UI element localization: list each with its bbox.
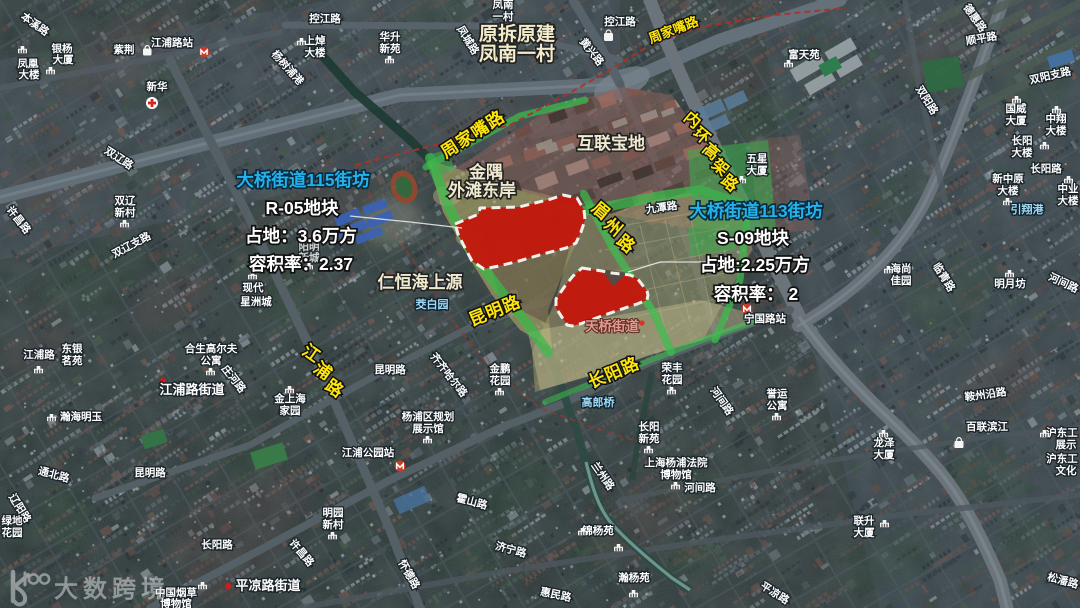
svg-text:大楼: 大楼: [1046, 124, 1068, 137]
svg-text:沪东工: 沪东工: [1046, 426, 1078, 439]
svg-text:江浦路街道: 江浦路街道: [159, 382, 224, 397]
svg-text:河间路: 河间路: [684, 481, 716, 494]
svg-text:上焯: 上焯: [305, 34, 326, 47]
svg-text:占地:2.25万方: 占地:2.25万方: [700, 255, 810, 275]
svg-text:新中原: 新中原: [992, 172, 1024, 185]
svg-text:华升: 华升: [380, 30, 401, 43]
svg-text:大楼: 大楼: [1058, 194, 1080, 207]
svg-text:茭白园: 茭白园: [416, 297, 449, 311]
svg-text:公寓: 公寓: [201, 354, 222, 367]
svg-text:紫荆: 紫荆: [114, 43, 135, 56]
svg-text:天桥街道: 天桥街道: [585, 318, 639, 334]
svg-text:新村: 新村: [115, 206, 136, 219]
svg-text:平凉路街道: 平凉路街道: [235, 578, 300, 593]
svg-text:公寓: 公寓: [767, 399, 788, 412]
svg-text:大楼: 大楼: [998, 184, 1019, 197]
svg-text:容积率：2.37: 容积率：2.37: [249, 254, 353, 274]
svg-text:高郎桥: 高郎桥: [582, 395, 616, 409]
svg-text:现代: 现代: [243, 281, 264, 294]
svg-text:花园: 花园: [662, 373, 683, 386]
svg-text:誉运: 誉运: [766, 387, 788, 400]
svg-text:星洲城: 星洲城: [240, 295, 272, 308]
svg-text:控江路: 控江路: [309, 12, 341, 25]
svg-text:海尚: 海尚: [891, 262, 912, 275]
svg-text:瀚海明玉: 瀚海明玉: [60, 410, 102, 423]
svg-text:江浦路: 江浦路: [23, 348, 55, 361]
svg-text:凤南: 凤南: [493, 0, 514, 11]
svg-text:仁恒海上源: 仁恒海上源: [378, 272, 463, 292]
svg-text:明园: 明园: [323, 507, 344, 519]
svg-text:百联滨江: 百联滨江: [966, 420, 1008, 433]
svg-text:展示馆: 展示馆: [412, 422, 444, 435]
svg-text:大厦: 大厦: [53, 53, 74, 66]
svg-text:明月坊: 明月坊: [994, 277, 1026, 290]
svg-text:昆明路: 昆明路: [374, 363, 406, 376]
svg-text:博物馆: 博物馆: [660, 468, 692, 481]
svg-text:家园: 家园: [280, 404, 301, 417]
svg-text:大桥街道113街坊: 大桥街道113街坊: [689, 201, 823, 221]
svg-text:长阳路: 长阳路: [201, 538, 233, 551]
svg-text:长阳: 长阳: [1012, 134, 1033, 147]
svg-text:金鹏: 金鹏: [489, 362, 511, 375]
svg-text:花园: 花园: [490, 374, 511, 387]
svg-text:外滩东岸: 外滩东岸: [448, 180, 516, 200]
svg-text:东银: 东银: [62, 342, 83, 355]
svg-text:合生高尔夫: 合生高尔夫: [184, 342, 238, 355]
svg-text:原拆原建: 原拆原建: [479, 22, 555, 45]
svg-text:龙泽: 龙泽: [873, 436, 895, 449]
svg-text:大楼: 大楼: [1012, 146, 1034, 159]
svg-text:五星: 五星: [747, 153, 768, 165]
svg-text:双辽: 双辽: [114, 195, 136, 207]
svg-text:绿地: 绿地: [2, 514, 23, 527]
svg-text:控江路: 控江路: [604, 15, 636, 28]
svg-text:长阳: 长阳: [639, 420, 660, 433]
svg-text:新苑: 新苑: [380, 42, 401, 55]
svg-text:中翔: 中翔: [1046, 112, 1067, 125]
svg-text:S-09地块: S-09地块: [717, 228, 789, 248]
svg-text:宁国路站: 宁国路站: [744, 312, 786, 325]
svg-text:联升: 联升: [854, 514, 875, 527]
svg-text:大楼: 大楼: [19, 68, 40, 81]
svg-text:新苑: 新苑: [639, 432, 660, 445]
svg-text:茗苑: 茗苑: [62, 354, 83, 367]
svg-text:文化: 文化: [1055, 464, 1078, 477]
svg-text:长阳路: 长阳路: [1030, 162, 1062, 175]
svg-text:R-05地块: R-05地块: [266, 198, 339, 218]
svg-text:金上海: 金上海: [273, 392, 306, 405]
svg-text:一村: 一村: [493, 10, 514, 23]
svg-text:中业: 中业: [1058, 182, 1080, 195]
svg-text:大楼: 大楼: [305, 46, 326, 59]
svg-text:杨浦区规划: 杨浦区规划: [402, 410, 455, 423]
svg-text:沪东工: 沪东工: [1046, 452, 1078, 465]
svg-text:凤南一村: 凤南一村: [479, 42, 555, 65]
svg-text:花园: 花园: [2, 526, 23, 539]
svg-text:大厦: 大厦: [854, 526, 875, 539]
svg-text:江浦路站: 江浦路站: [151, 36, 193, 49]
svg-text:国威: 国威: [1006, 102, 1028, 115]
svg-text:大厦: 大厦: [874, 448, 895, 461]
svg-text:大桥街道115街坊: 大桥街道115街坊: [236, 170, 370, 190]
svg-text:富天苑: 富天苑: [788, 48, 820, 61]
svg-text:展示: 展示: [1056, 439, 1078, 451]
svg-text:占地：3.6万方: 占地：3.6万方: [245, 226, 357, 246]
svg-text:昆明路: 昆明路: [134, 466, 166, 479]
svg-text:金隅: 金隅: [468, 162, 503, 182]
svg-text:容积率： 2: 容积率： 2: [714, 284, 799, 304]
svg-text:大数跨境: 大数跨境: [54, 575, 170, 603]
svg-text:引翔港: 引翔港: [1011, 202, 1045, 216]
svg-text:锦杨苑: 锦杨苑: [582, 524, 614, 537]
svg-text:瀚杨苑: 瀚杨苑: [618, 571, 650, 584]
svg-text:佳园: 佳园: [891, 274, 912, 287]
svg-text:荣丰: 荣丰: [661, 361, 683, 374]
svg-text:新村: 新村: [323, 518, 344, 531]
svg-text:上海杨浦法院: 上海杨浦法院: [645, 456, 708, 469]
svg-text:江浦公园站: 江浦公园站: [342, 446, 395, 459]
svg-text:大厦: 大厦: [1006, 114, 1028, 127]
svg-text:新华: 新华: [147, 80, 168, 93]
svg-text:互联宝地: 互联宝地: [577, 133, 645, 153]
svg-text:大厦: 大厦: [747, 164, 768, 177]
